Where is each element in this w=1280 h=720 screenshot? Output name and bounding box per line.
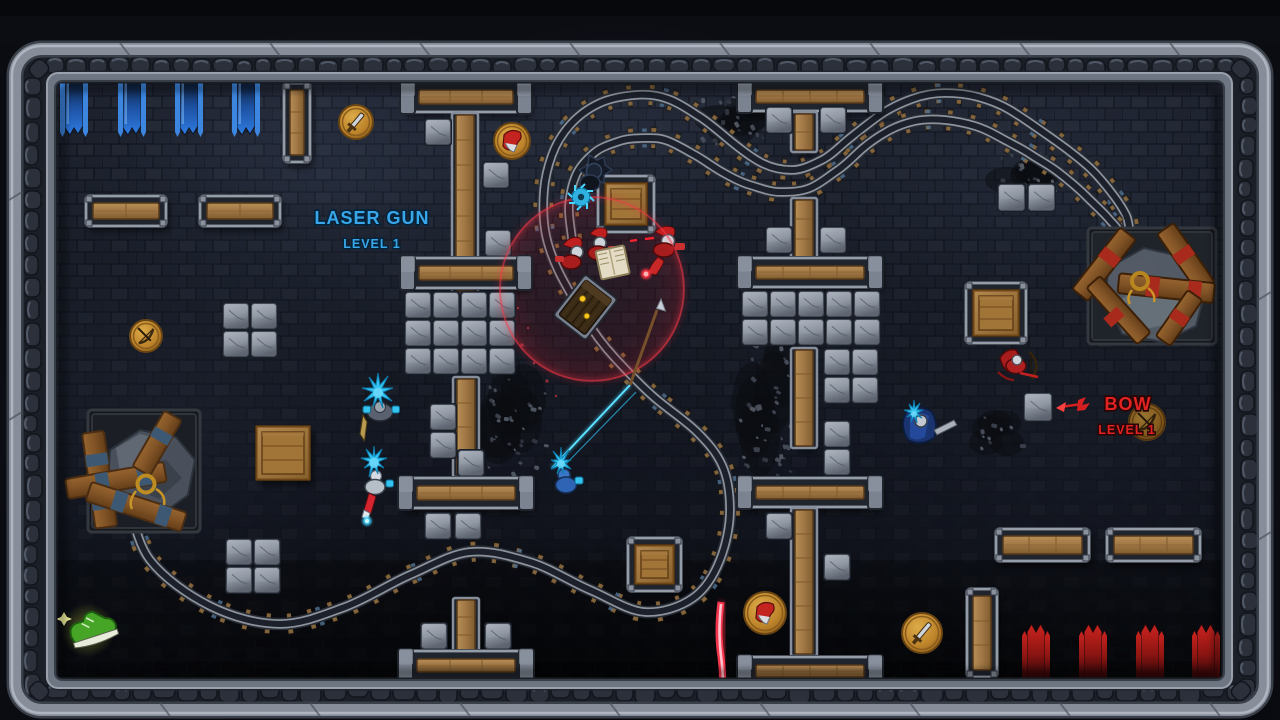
svg-text:LASER GUN: LASER GUN (314, 208, 429, 228)
svg-text:BOW: BOW (1105, 394, 1152, 414)
svg-text:LEVEL 1: LEVEL 1 (1098, 423, 1155, 437)
svg-text:LEVEL 1: LEVEL 1 (343, 237, 400, 251)
